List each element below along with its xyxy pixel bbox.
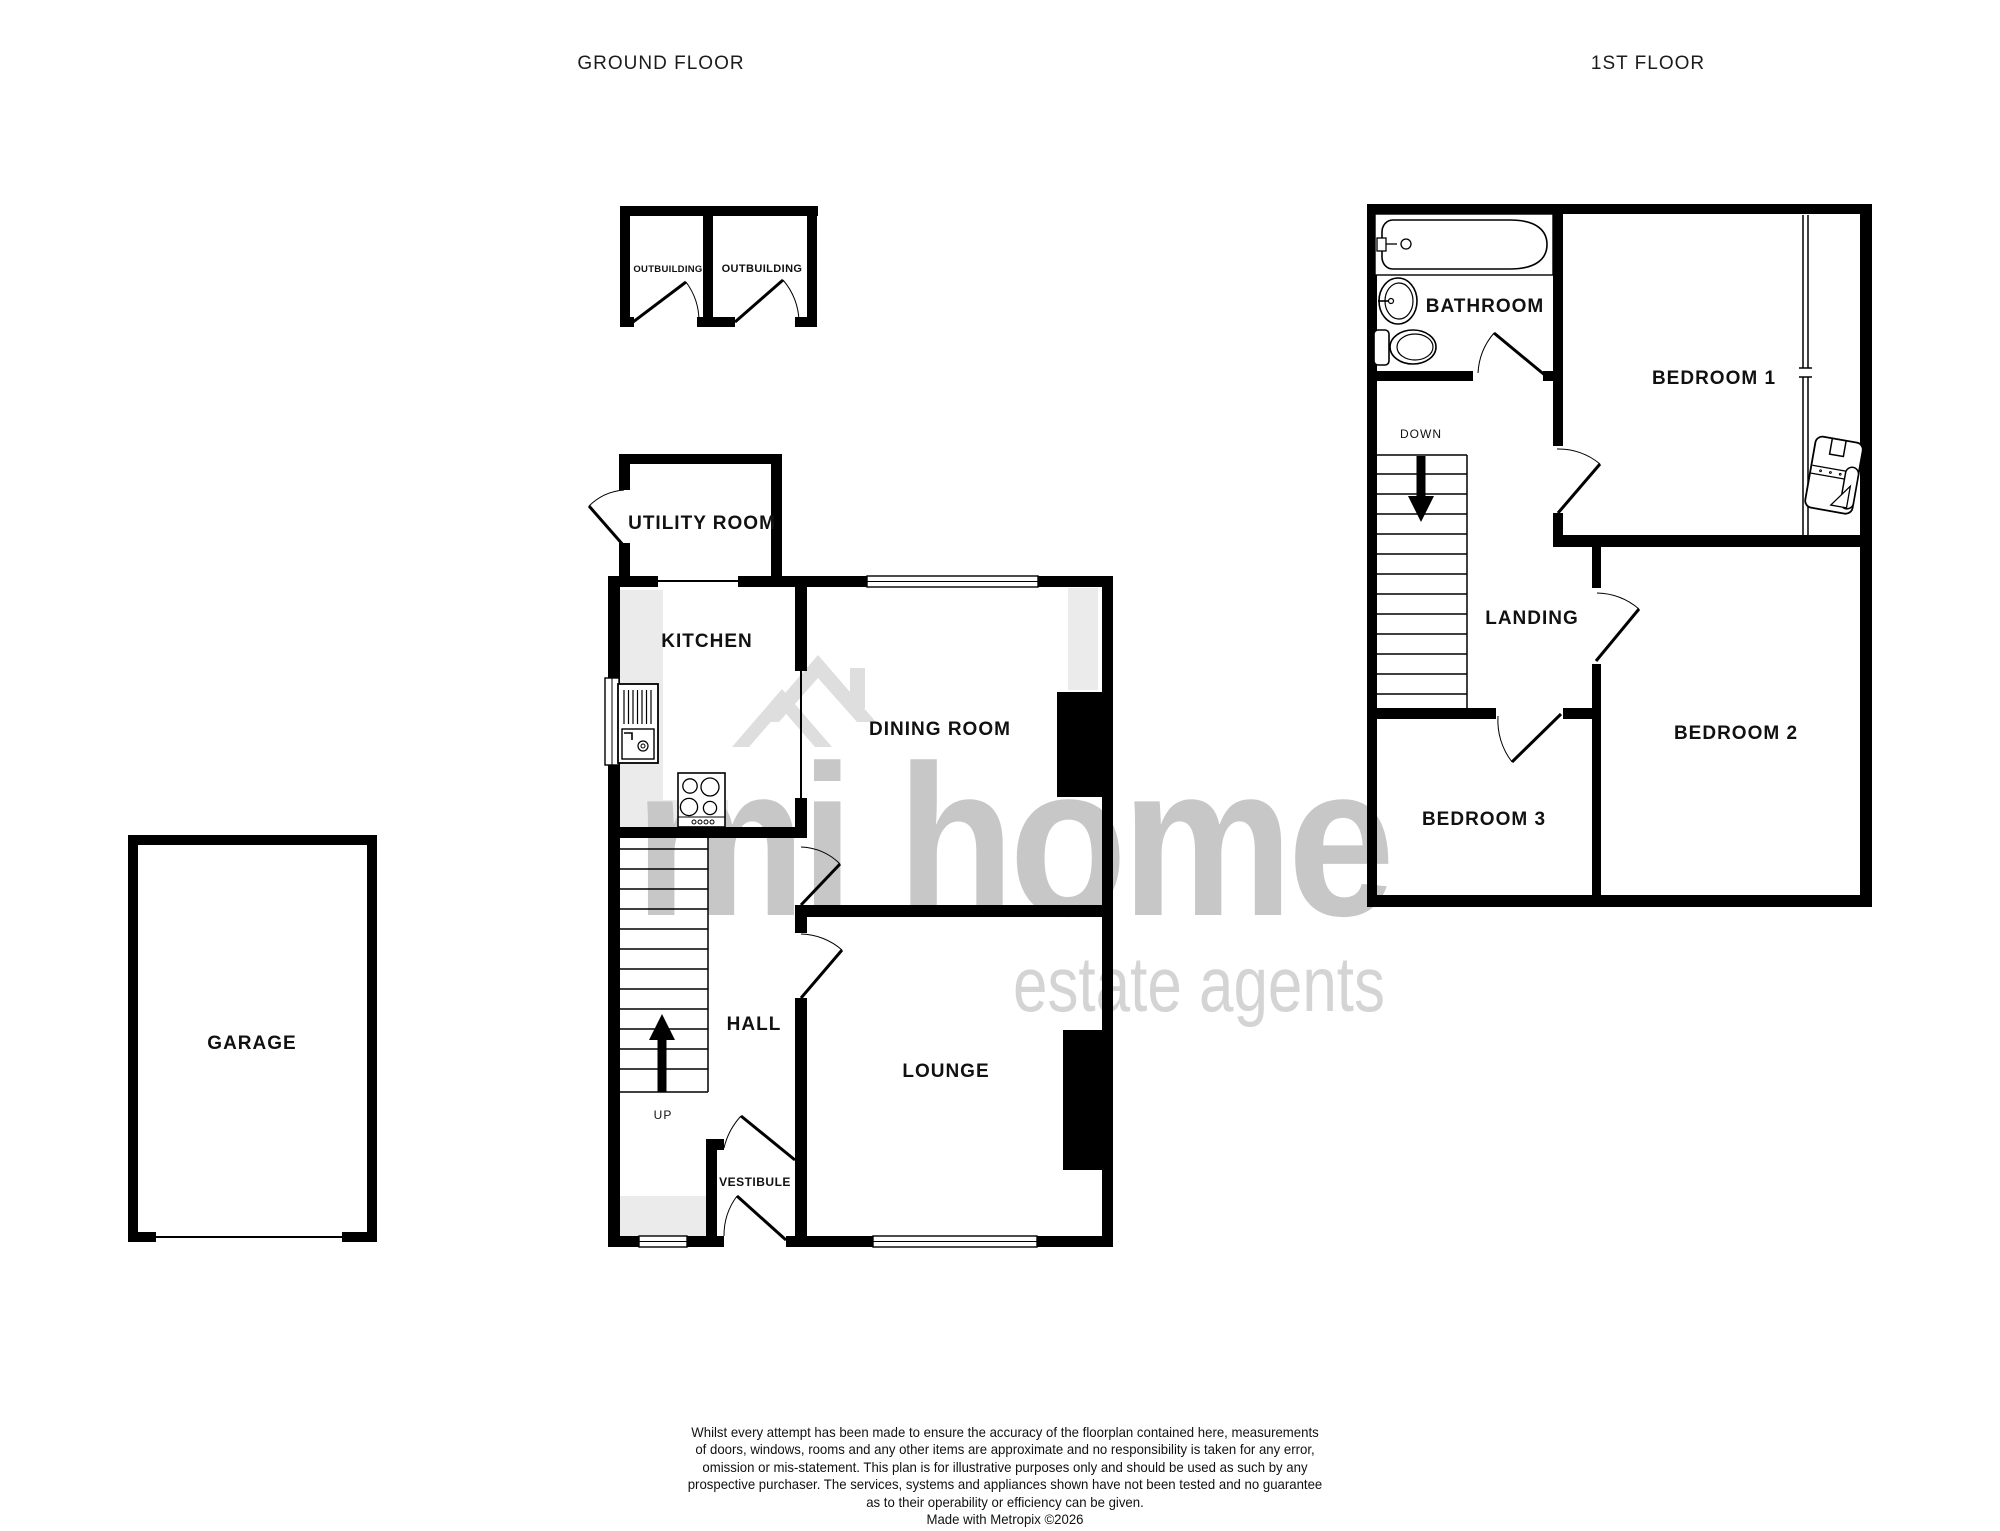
toilet-icon — [1374, 330, 1436, 365]
watermark-tagline-text: estate agents — [1013, 940, 1385, 1028]
kitchen-window — [605, 678, 619, 765]
disclaimer-block: Whilst every attempt has been made to en… — [617, 1424, 1393, 1528]
room-label-bathroom: BATHROOM — [1426, 296, 1544, 317]
front-door — [724, 1196, 786, 1240]
ground-floor-title: GROUND FLOOR — [577, 53, 744, 74]
watermark: mi home estate agents — [635, 655, 1390, 1028]
outbuilding-doors — [633, 280, 799, 322]
bath-tap-icon — [1377, 238, 1386, 251]
down-arrow-icon — [1408, 456, 1434, 522]
bedroom3-door — [1498, 714, 1561, 762]
vestibule-inner-door — [724, 1116, 795, 1160]
lounge-chimney-breast — [1063, 1030, 1102, 1170]
watermark-brand-text: mi home — [635, 720, 1390, 961]
up-arrow-icon — [649, 1014, 675, 1092]
bathroom-door — [1478, 333, 1546, 376]
room-label-bedroom1: BEDROOM 1 — [1652, 368, 1776, 389]
room-label-landing: LANDING — [1485, 608, 1579, 629]
bathroom-fixtures — [1374, 214, 1553, 365]
kitchen-hob — [678, 773, 725, 827]
room-label-hall: HALL — [727, 1014, 782, 1035]
bathtub-icon — [1375, 214, 1553, 275]
kitchen-sink-unit — [618, 684, 658, 763]
room-label-garage: GARAGE — [207, 1033, 296, 1054]
disclaimer-line: Whilst every attempt has been made to en… — [617, 1424, 1393, 1441]
room-label-dining: DINING ROOM — [869, 719, 1011, 740]
disclaimer-line: omission or mis-statement. This plan is … — [617, 1459, 1393, 1476]
room-label-bedroom3: BEDROOM 3 — [1422, 809, 1546, 830]
utility-door — [589, 490, 624, 546]
lounge-window — [873, 1236, 1037, 1247]
disclaimer-line: as to their operability or efficiency ca… — [617, 1494, 1393, 1511]
dining-chimney-breast — [1057, 692, 1102, 797]
room-label-outbuilding-left: OUTBUILDING — [633, 264, 702, 275]
room-label-utility: UTILITY ROOM — [628, 513, 776, 534]
floorplan-page: { "titles": { "ground": "GROUND FLOOR", … — [0, 0, 2000, 1531]
room-label-kitchen: KITCHEN — [661, 631, 752, 652]
room-label-outbuilding-right: OUTBUILDING — [722, 263, 803, 275]
first-floor-title: 1ST FLOOR — [1591, 53, 1705, 74]
dining-window — [867, 576, 1038, 587]
bedroom1-chair-icon — [1804, 436, 1864, 515]
disclaimer-line: of doors, windows, rooms and any other i… — [617, 1441, 1393, 1458]
bedroom1-door — [1557, 449, 1600, 513]
metropix-credit: Made with Metropix ©2026 — [617, 1511, 1393, 1528]
hall-window — [639, 1236, 687, 1247]
wash-basin-icon — [1378, 278, 1417, 324]
porch-shading — [620, 1196, 706, 1236]
floorplan-svg: mi home estate agents — [0, 0, 2000, 1531]
stairs-down-label: DOWN — [1400, 427, 1442, 441]
room-label-bedroom2: BEDROOM 2 — [1674, 723, 1798, 744]
stairs-up-label: UP — [654, 1108, 673, 1122]
dining-alcove-shading — [1068, 588, 1098, 690]
room-label-vestibule: VESTIBULE — [719, 1175, 791, 1189]
bedroom2-door — [1596, 593, 1639, 661]
disclaimer-line: prospective purchaser. The services, sys… — [617, 1476, 1393, 1493]
room-label-lounge: LOUNGE — [902, 1061, 989, 1082]
